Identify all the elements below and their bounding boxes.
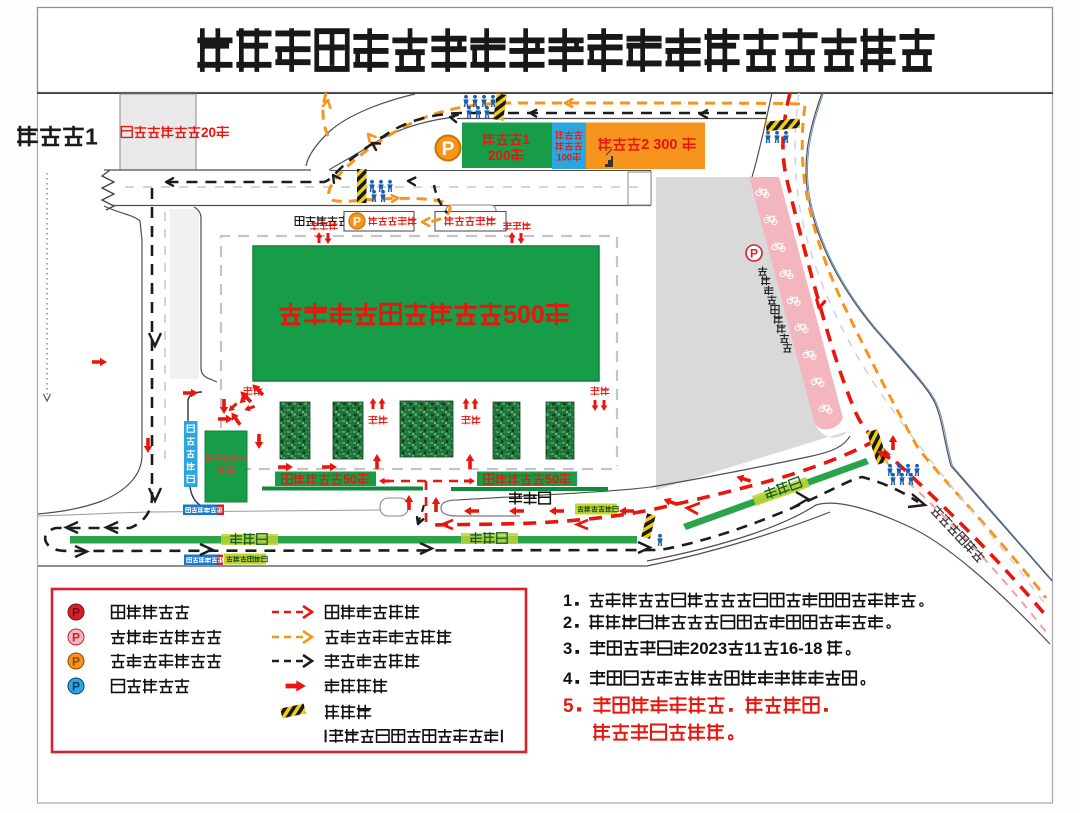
svg-text:P: P [72,680,80,694]
svg-text:1: 1 [85,123,98,149]
svg-text:2 300: 2 300 [641,137,677,153]
svg-text:P: P [442,139,455,160]
svg-text:1: 1 [563,592,572,610]
svg-text:2: 2 [563,614,572,632]
svg-text:P: P [72,631,80,645]
svg-text:20: 20 [217,465,227,475]
svg-text:20: 20 [201,125,216,140]
svg-text:50: 50 [343,473,357,487]
svg-text:3: 3 [563,639,572,658]
svg-text:P: P [750,247,758,261]
svg-text:50: 50 [545,473,559,487]
svg-text:P: P [353,215,361,229]
svg-text:200: 200 [488,148,511,163]
svg-text:P: P [72,655,80,669]
svg-text:1: 1 [523,132,531,147]
svg-text:4: 4 [563,669,573,688]
svg-text:500: 500 [503,301,545,329]
svg-text:5: 5 [563,696,574,717]
svg-text:100: 100 [557,152,573,162]
svg-text:2023: 2023 [690,639,727,658]
svg-text:11: 11 [744,639,762,658]
svg-text:16-18: 16-18 [780,639,823,658]
svg-text:P: P [72,606,80,620]
